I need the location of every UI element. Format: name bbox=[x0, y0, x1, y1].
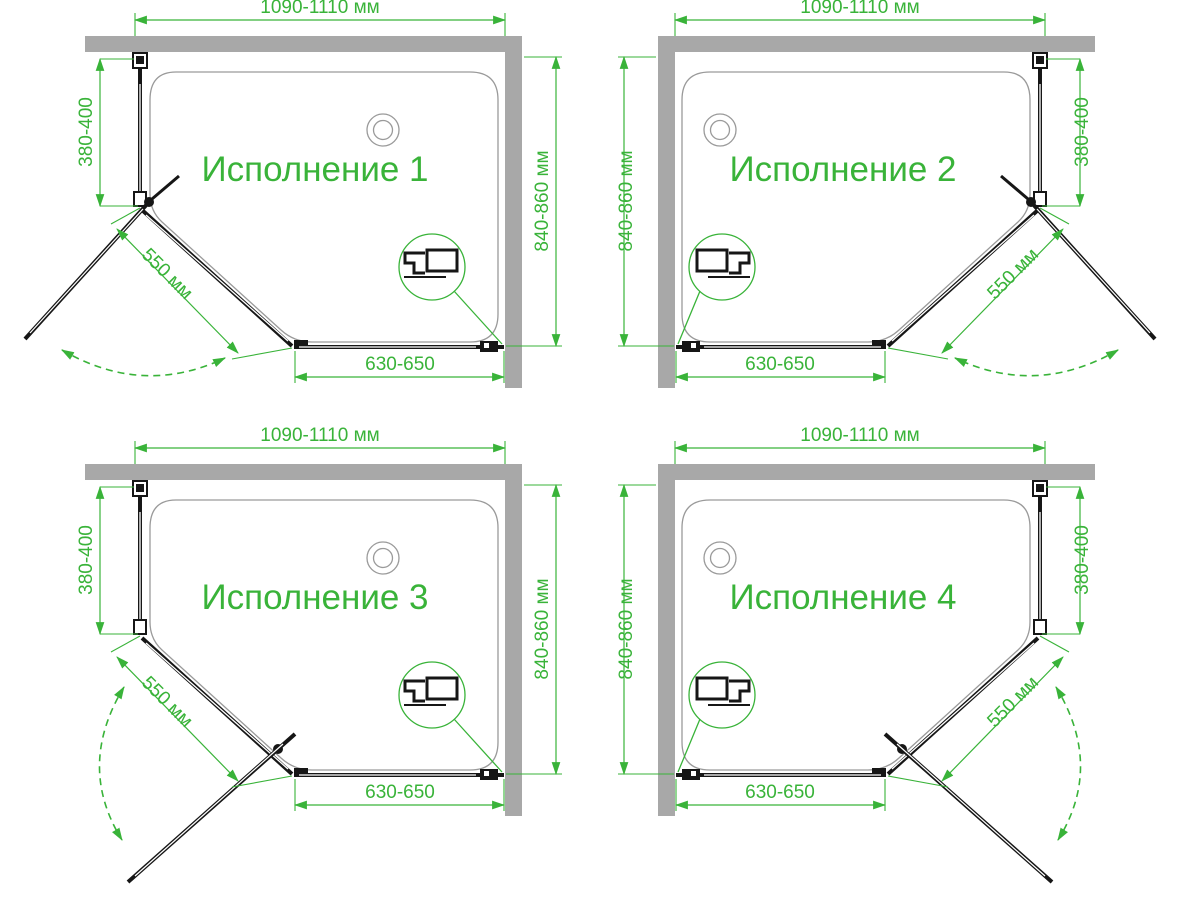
profile-section-icon bbox=[427, 250, 457, 271]
top-wall bbox=[658, 464, 1095, 480]
dim-label-width: 1090-1110 мм bbox=[260, 425, 379, 446]
extension-line bbox=[232, 348, 292, 359]
geometry-group bbox=[618, 441, 1095, 882]
drain-inner-circle bbox=[711, 549, 730, 568]
wall-profile-top bbox=[136, 484, 144, 492]
dim-label-height: 840-860 мм bbox=[616, 150, 637, 251]
wall-profile-bottom bbox=[484, 343, 489, 348]
wall-profile-bottom bbox=[691, 771, 696, 776]
shower-tray-outline bbox=[682, 72, 1030, 342]
detail-leader-line bbox=[678, 291, 700, 344]
shower-tray-outline bbox=[150, 500, 498, 770]
detail-leader-line bbox=[454, 719, 502, 772]
wall-profile-bottom bbox=[484, 771, 489, 776]
diagram-variant-3: 1090-1110 мм840-860 мм380-400550 мм630-6… bbox=[0, 450, 600, 900]
wall-profile-top bbox=[1036, 484, 1044, 492]
side-wall bbox=[505, 36, 522, 388]
dim-label-width: 1090-1110 мм bbox=[260, 0, 379, 18]
dim-label-bottom: 630-650 bbox=[745, 354, 815, 375]
drain-outer-circle bbox=[704, 542, 736, 574]
extension-line bbox=[1040, 636, 1069, 652]
drain-outer-circle bbox=[367, 542, 399, 574]
dim-label-height: 840-860 мм bbox=[616, 578, 637, 679]
profile-section-icon bbox=[729, 253, 749, 273]
dim-label-bottom: 630-650 bbox=[365, 354, 435, 375]
panel-corner-step bbox=[294, 768, 308, 773]
dim-label-height: 840-860 мм bbox=[532, 150, 553, 251]
wall-profile-top bbox=[1036, 56, 1044, 64]
door-swing-arc bbox=[62, 350, 225, 376]
wall-profile-top bbox=[136, 56, 144, 64]
dim-label-side: 380-400 bbox=[76, 97, 97, 167]
top-wall bbox=[85, 36, 522, 52]
profile-section-icon bbox=[405, 681, 425, 701]
detail-leader-line bbox=[454, 291, 502, 344]
side-wall bbox=[505, 464, 522, 816]
dim-label-side: 380-400 bbox=[1072, 97, 1093, 167]
profile-section-icon bbox=[427, 678, 457, 699]
drain-outer-circle bbox=[367, 114, 399, 146]
detail-callout-circle bbox=[399, 234, 465, 300]
hinge-profile bbox=[134, 192, 146, 206]
geometry-group bbox=[25, 13, 562, 388]
hinge-profile bbox=[1034, 192, 1046, 206]
dim-label-width: 1090-1110 мм bbox=[800, 0, 919, 18]
dim-label-height: 840-860 мм bbox=[532, 578, 553, 679]
drain-outer-circle bbox=[704, 114, 736, 146]
hinge-profile bbox=[134, 620, 146, 634]
profile-section-icon bbox=[405, 253, 425, 273]
door-handle-stub bbox=[152, 176, 179, 199]
diagram-cell-2: 1090-1110 мм840-860 мм380-400550 мм630-6… bbox=[600, 0, 1200, 450]
top-wall bbox=[658, 36, 1095, 52]
diagram-variant-2: 1090-1110 мм840-860 мм380-400550 мм630-6… bbox=[600, 0, 1200, 450]
detail-callout-circle bbox=[689, 234, 755, 300]
panel-corner-step bbox=[872, 340, 886, 345]
drain-inner-circle bbox=[711, 121, 730, 140]
diagram-grid: 1090-1110 мм840-860 мм380-400550 мм630-6… bbox=[0, 0, 1200, 900]
diagram-cell-3: 1090-1110 мм840-860 мм380-400550 мм630-6… bbox=[0, 450, 600, 900]
dim-label-width: 1090-1110 мм bbox=[800, 425, 919, 446]
diagram-cell-1: 1090-1110 мм840-860 мм380-400550 мм630-6… bbox=[0, 0, 600, 450]
detail-leader-line bbox=[678, 719, 700, 772]
diagram-cell-4: 1090-1110 мм840-860 мм380-400550 мм630-6… bbox=[600, 450, 1200, 900]
door-handle-stub bbox=[1001, 176, 1028, 199]
diagram-title: Исполнение 2 bbox=[729, 150, 956, 189]
drain-inner-circle bbox=[374, 121, 393, 140]
profile-section-icon bbox=[697, 678, 727, 699]
diagram-title: Исполнение 4 bbox=[729, 578, 956, 617]
door-swing-arc bbox=[1056, 687, 1081, 840]
drain-inner-circle bbox=[374, 549, 393, 568]
geometry-group bbox=[618, 13, 1155, 388]
profile-section-icon bbox=[697, 250, 727, 271]
panel-corner-step bbox=[294, 340, 308, 345]
side-wall bbox=[658, 36, 675, 388]
profile-section-icon bbox=[729, 681, 749, 701]
detail-callout-circle bbox=[689, 662, 755, 728]
diagram-variant-1: 1090-1110 мм840-860 мм380-400550 мм630-6… bbox=[0, 0, 600, 450]
door-swing-arc bbox=[955, 350, 1118, 376]
wall-profile-bottom bbox=[691, 343, 696, 348]
hinge-profile bbox=[1034, 620, 1046, 634]
dim-label-side: 380-400 bbox=[1072, 525, 1093, 595]
shower-tray-outline bbox=[150, 72, 498, 342]
door-swing-arc bbox=[99, 687, 124, 840]
extension-line bbox=[888, 348, 948, 359]
dim-label-bottom: 630-650 bbox=[365, 782, 435, 803]
dim-label-bottom: 630-650 bbox=[745, 782, 815, 803]
detail-callout-circle bbox=[399, 662, 465, 728]
dim-label-side: 380-400 bbox=[76, 525, 97, 595]
diagram-title: Исполнение 1 bbox=[201, 150, 428, 189]
extension-line bbox=[111, 636, 140, 652]
geometry-group bbox=[85, 441, 562, 882]
top-wall bbox=[85, 464, 522, 480]
panel-corner-step bbox=[872, 768, 886, 773]
diagram-title: Исполнение 3 bbox=[201, 578, 428, 617]
diagram-variant-4: 1090-1110 мм840-860 мм380-400550 мм630-6… bbox=[600, 450, 1200, 900]
side-wall bbox=[658, 464, 675, 816]
shower-tray-outline bbox=[682, 500, 1030, 770]
